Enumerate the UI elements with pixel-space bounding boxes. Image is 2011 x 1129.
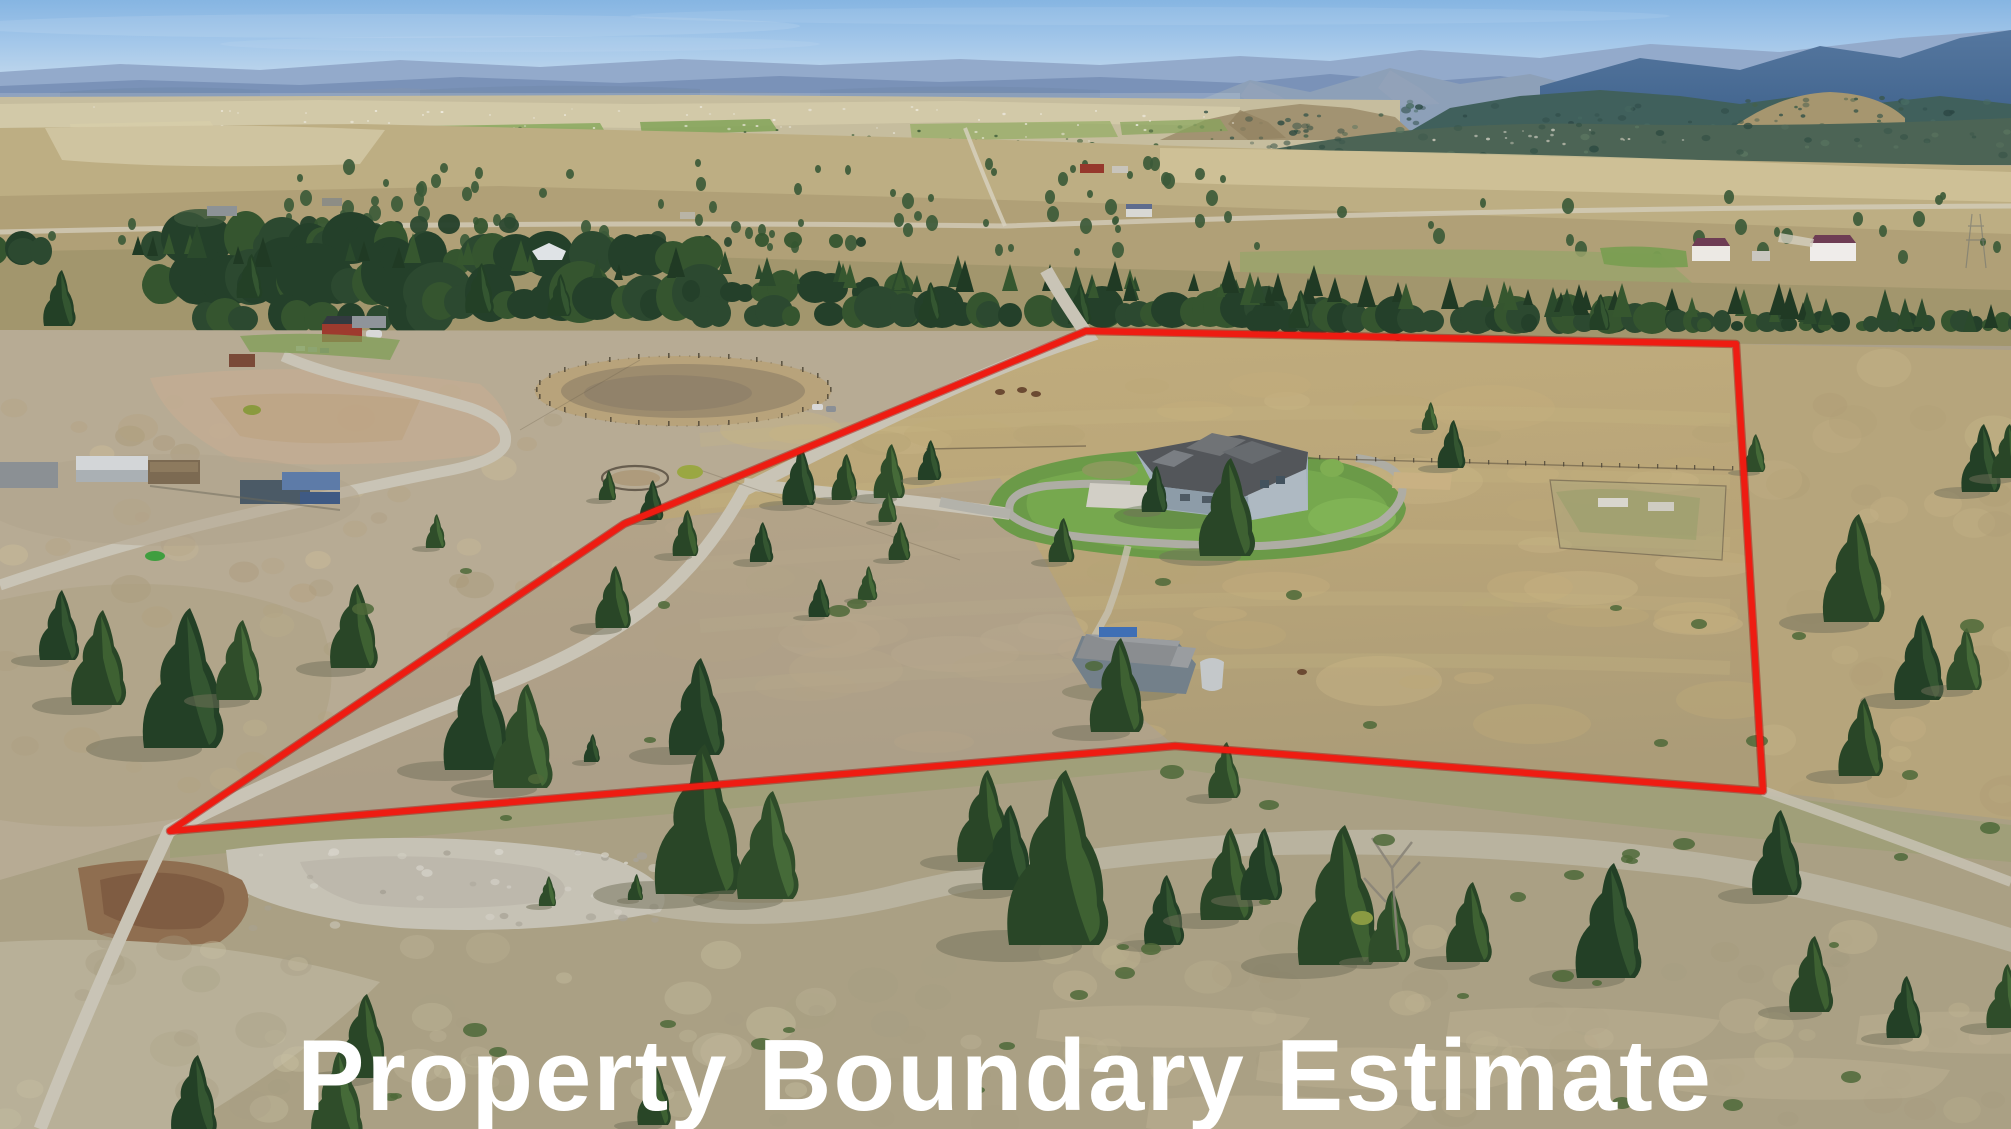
svg-text:Property Boundary Estimate: Property Boundary Estimate xyxy=(297,1020,1713,1129)
